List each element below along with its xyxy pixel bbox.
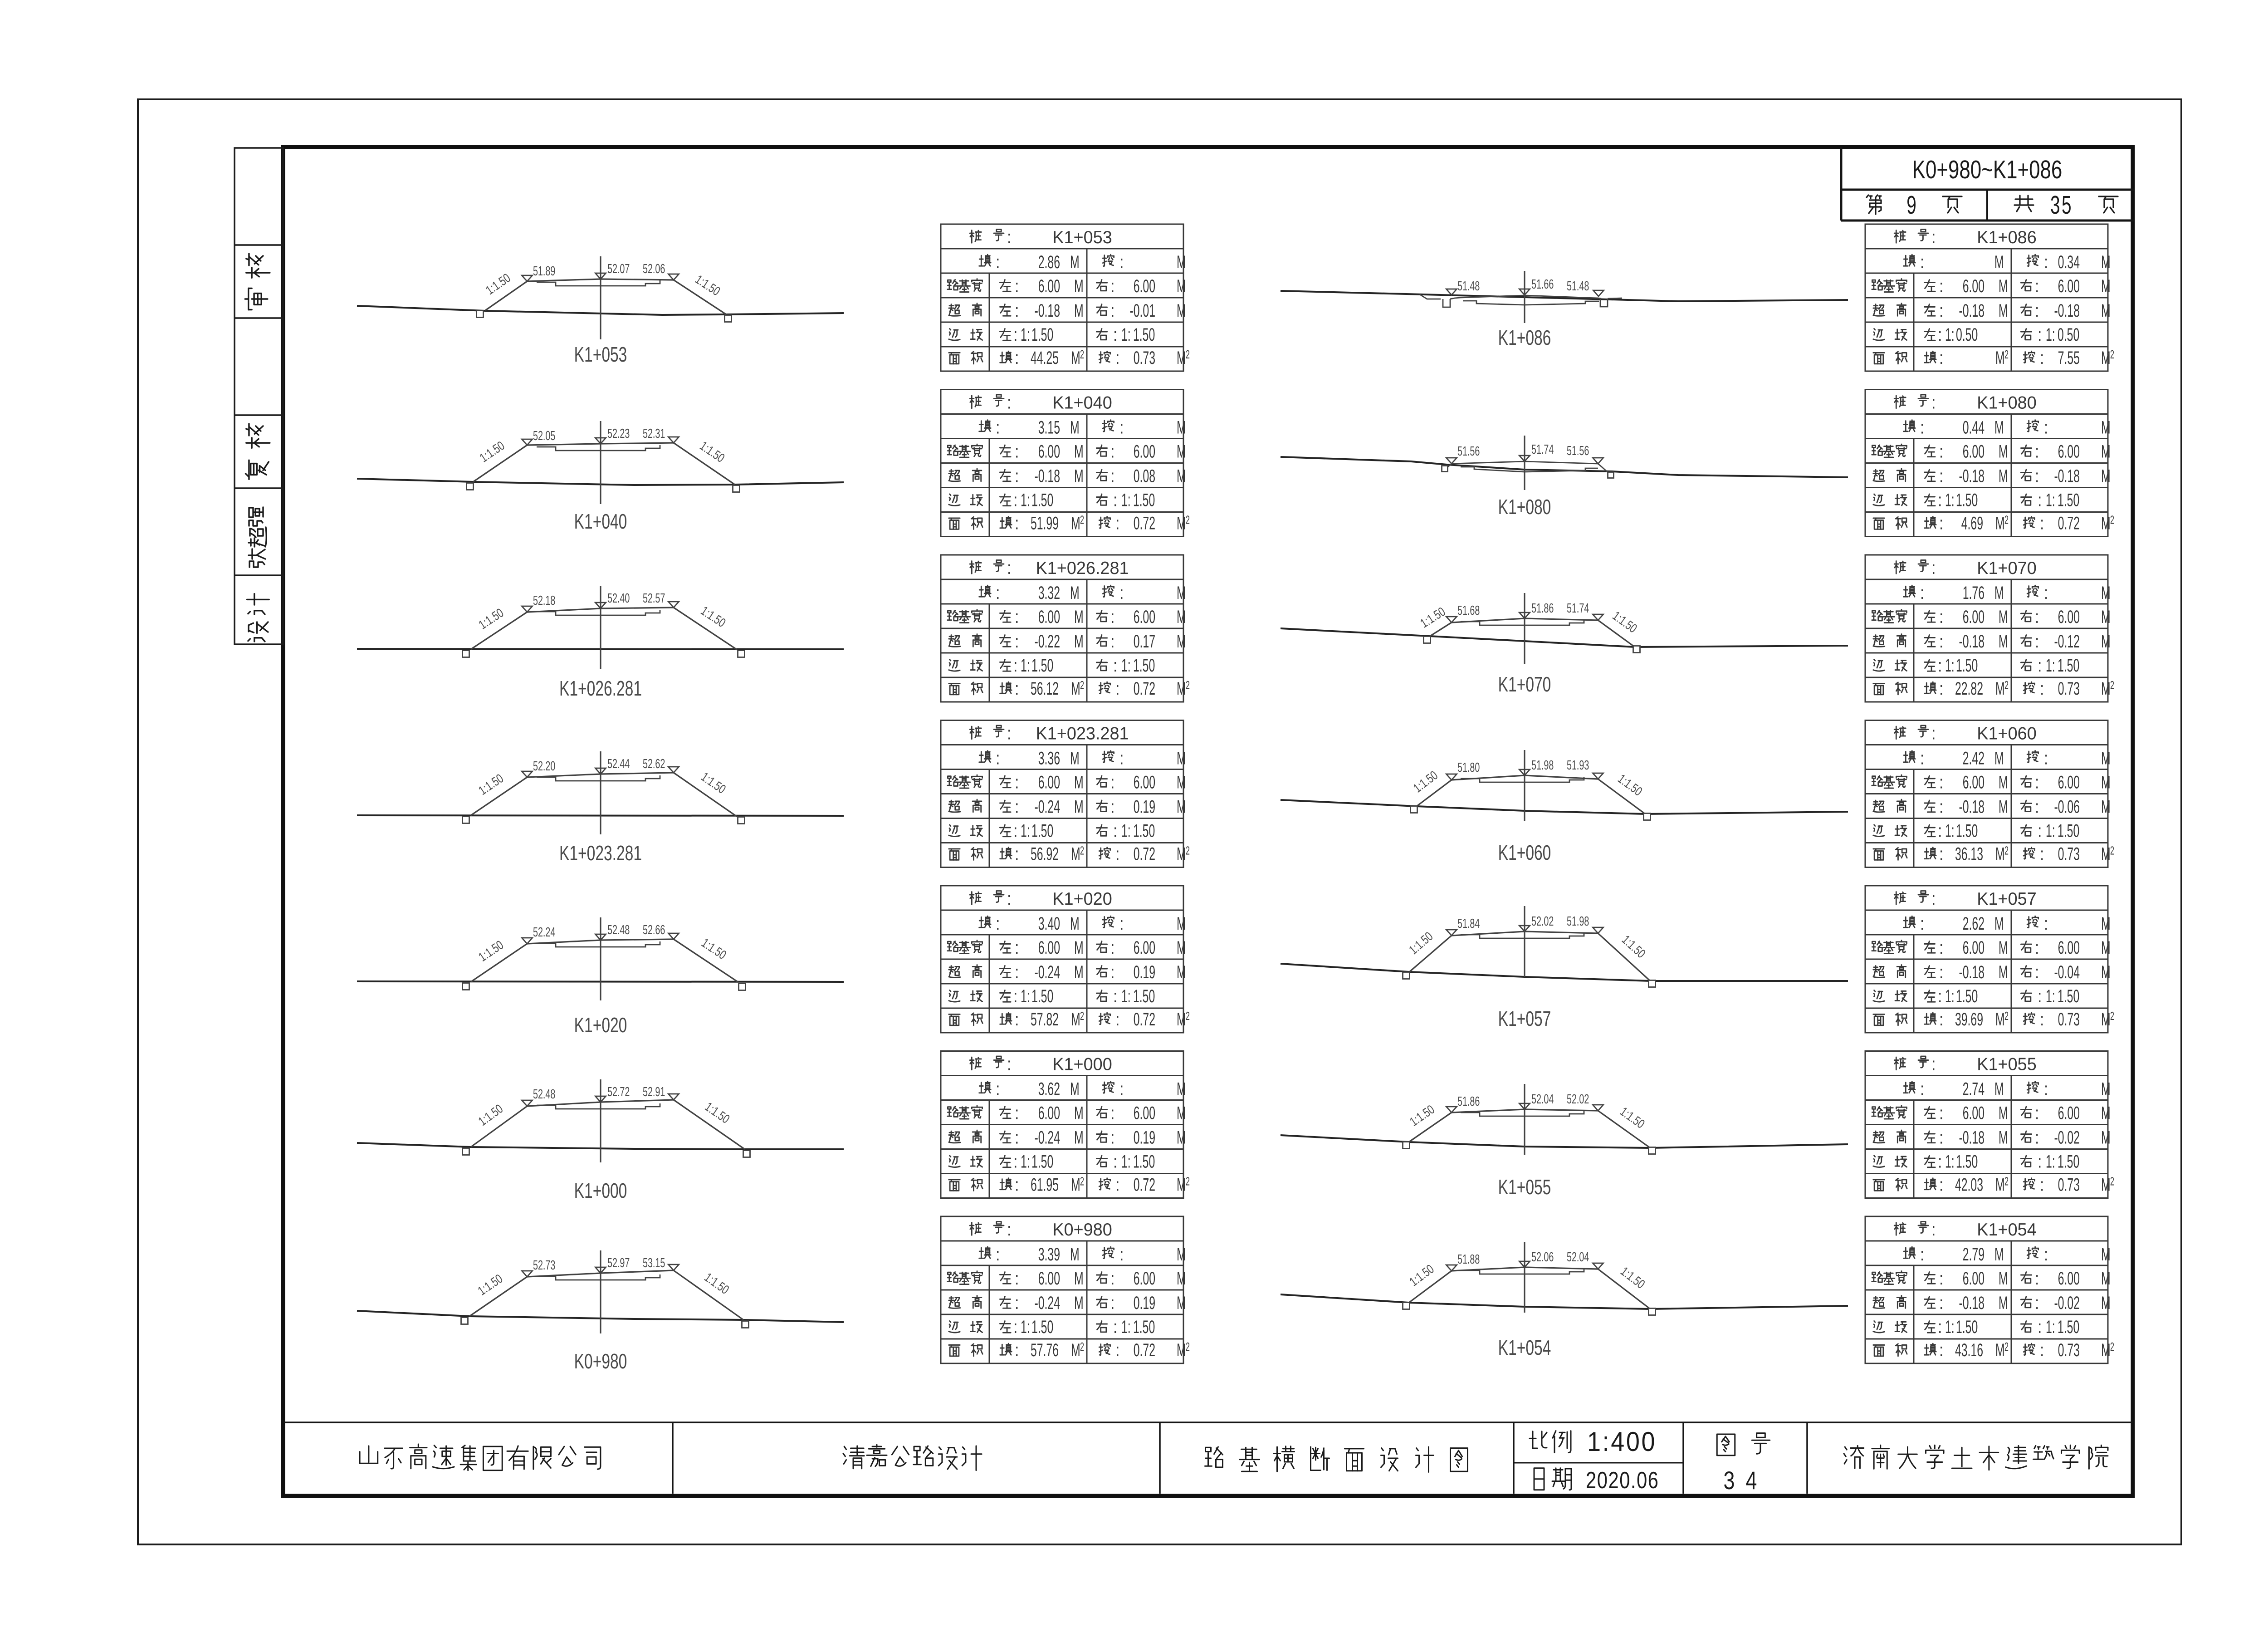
svg-text:2: 2 — [2004, 678, 2009, 692]
svg-text::: : — [2035, 937, 2039, 957]
svg-text:3: 3 — [1724, 1466, 1735, 1495]
svg-text:1.50: 1.50 — [1031, 986, 1053, 1006]
svg-text:M: M — [1995, 1175, 2005, 1195]
svg-text:0.73: 0.73 — [1134, 348, 1155, 368]
svg-text:-0.24: -0.24 — [1034, 1128, 1060, 1148]
svg-text::: : — [1013, 1151, 1017, 1171]
svg-text::: : — [1939, 1174, 1943, 1195]
svg-text:M: M — [2101, 276, 2111, 296]
svg-text:K1+060: K1+060 — [1977, 724, 2036, 744]
svg-text:2: 2 — [1186, 348, 1190, 361]
svg-text::: : — [2035, 1127, 2039, 1147]
svg-text:M: M — [1070, 1245, 1080, 1265]
svg-text:0.34: 0.34 — [2058, 252, 2080, 272]
svg-text::: : — [2040, 1009, 2044, 1029]
svg-text::: : — [1939, 796, 1943, 817]
svg-text:K1+086: K1+086 — [1498, 326, 1551, 349]
svg-text:-0.12: -0.12 — [2054, 632, 2080, 652]
svg-text:6.00: 6.00 — [1963, 607, 1984, 627]
svg-text:2: 2 — [1186, 1009, 1190, 1023]
svg-text:1.50: 1.50 — [1956, 1317, 1978, 1337]
svg-text:1.50: 1.50 — [1031, 821, 1053, 841]
svg-text::: : — [1920, 1244, 1924, 1264]
svg-text:44.25: 44.25 — [1031, 348, 1059, 368]
svg-text:M: M — [2101, 1245, 2111, 1265]
svg-text::: : — [1119, 251, 1124, 272]
svg-text:1.50: 1.50 — [2058, 656, 2079, 676]
svg-text::: : — [1110, 1127, 1114, 1147]
svg-text:3.15: 3.15 — [1038, 418, 1060, 438]
svg-text:0.72: 0.72 — [1134, 1175, 1155, 1195]
svg-text:0.44: 0.44 — [1963, 418, 1984, 438]
svg-text:K1+070: K1+070 — [1498, 673, 1551, 696]
svg-text::: : — [2040, 347, 2044, 368]
svg-text:1.50: 1.50 — [1031, 1152, 1053, 1172]
svg-text::: : — [1939, 441, 1943, 461]
svg-text::: : — [1013, 490, 1017, 510]
svg-text::: : — [1007, 1054, 1011, 1074]
svg-text:1.50: 1.50 — [1031, 490, 1053, 510]
svg-text:1:: 1: — [1021, 821, 1030, 841]
svg-text:M: M — [1177, 276, 1186, 296]
svg-text:M: M — [2101, 252, 2111, 272]
svg-text:M: M — [1071, 348, 1080, 368]
svg-text:22.82: 22.82 — [1955, 679, 1983, 699]
svg-text:M: M — [1074, 607, 1084, 627]
svg-text:-0.02: -0.02 — [2054, 1293, 2080, 1313]
svg-text:43.16: 43.16 — [1955, 1340, 1983, 1360]
svg-text:M: M — [1999, 632, 2008, 652]
svg-text::: : — [1920, 251, 1924, 272]
svg-text::: : — [1013, 324, 1017, 344]
svg-text:-0.18: -0.18 — [1034, 466, 1060, 486]
svg-text:1.50: 1.50 — [1133, 490, 1155, 510]
svg-text:0.19: 0.19 — [1134, 962, 1155, 982]
svg-text:K1+040: K1+040 — [574, 510, 627, 533]
svg-text:51.86: 51.86 — [1531, 601, 1554, 616]
svg-text::: : — [996, 251, 1000, 272]
svg-text::: : — [2035, 1268, 2039, 1288]
svg-text:M: M — [2101, 962, 2111, 982]
svg-text:2020.06: 2020.06 — [1586, 1467, 1659, 1494]
svg-text:M: M — [1070, 749, 1080, 769]
svg-text:6.00: 6.00 — [2058, 442, 2080, 462]
svg-text::: : — [1007, 557, 1011, 578]
svg-text:1:: 1: — [1121, 325, 1131, 345]
svg-text:51.99: 51.99 — [1031, 514, 1059, 534]
svg-text::: : — [1939, 275, 1943, 296]
svg-text::: : — [2044, 748, 2048, 768]
svg-text::: : — [2035, 606, 2039, 627]
svg-text::: : — [1939, 606, 1943, 627]
svg-text::: : — [1113, 1151, 1117, 1171]
svg-text::: : — [1013, 1316, 1017, 1337]
svg-text:M: M — [2101, 914, 2111, 934]
svg-text:1:: 1: — [1121, 1152, 1131, 1172]
svg-text:-0.18: -0.18 — [1959, 1128, 1984, 1148]
svg-text:M: M — [1177, 442, 1186, 462]
svg-text::: : — [2040, 513, 2044, 533]
svg-text::: : — [1119, 417, 1124, 437]
svg-text:6.00: 6.00 — [1038, 276, 1060, 296]
svg-text:M: M — [1177, 938, 1186, 958]
svg-text:52.02: 52.02 — [1567, 1092, 1589, 1107]
svg-text::: : — [1119, 1244, 1124, 1264]
svg-text::: : — [2035, 300, 2039, 320]
svg-text:51.56: 51.56 — [1567, 444, 1589, 458]
svg-text:M: M — [2101, 1010, 2111, 1029]
svg-text:51.66: 51.66 — [1531, 277, 1554, 292]
svg-text:M: M — [2101, 348, 2111, 368]
svg-text:M: M — [1177, 773, 1186, 793]
svg-text:M: M — [1999, 1293, 2008, 1313]
svg-text:M: M — [1177, 514, 1186, 534]
svg-text:M: M — [1999, 773, 2008, 793]
svg-text::: : — [1939, 843, 1943, 864]
svg-text:-0.02: -0.02 — [2054, 1128, 2080, 1148]
svg-text:M: M — [1071, 1340, 1080, 1360]
svg-text:1:: 1: — [1121, 656, 1131, 676]
svg-text:51.80: 51.80 — [1457, 760, 1480, 775]
svg-text:6.00: 6.00 — [1963, 1269, 1984, 1289]
svg-text::: : — [1115, 678, 1119, 698]
svg-text:1:: 1: — [2046, 986, 2055, 1006]
svg-text:1.50: 1.50 — [1031, 1317, 1053, 1337]
svg-text:1:: 1: — [1945, 1317, 1955, 1337]
svg-text:0.50: 0.50 — [1956, 325, 1978, 345]
svg-text::: : — [2040, 1339, 2044, 1360]
svg-text:M: M — [1074, 632, 1084, 652]
svg-text:1.50: 1.50 — [1031, 325, 1053, 345]
svg-text:2: 2 — [2110, 678, 2114, 692]
svg-text::: : — [1939, 631, 1943, 651]
svg-text:M: M — [2101, 1269, 2111, 1289]
svg-text:M: M — [1177, 301, 1186, 321]
svg-text::: : — [1015, 631, 1019, 651]
svg-text:6.00: 6.00 — [1134, 607, 1155, 627]
svg-text:M: M — [1999, 442, 2008, 462]
svg-text:K1+023.281: K1+023.281 — [559, 842, 642, 865]
svg-text::: : — [1939, 1292, 1943, 1313]
svg-text:-0.18: -0.18 — [1959, 466, 1984, 486]
svg-text:K1+070: K1+070 — [1977, 558, 2036, 578]
svg-text::: : — [2044, 1078, 2048, 1099]
svg-text::: : — [1015, 1009, 1019, 1029]
svg-text:0.73: 0.73 — [2058, 1010, 2080, 1029]
svg-text::: : — [1113, 490, 1117, 510]
svg-text::: : — [1115, 1009, 1119, 1029]
svg-text::: : — [1938, 985, 1942, 1006]
svg-text::: : — [1110, 441, 1114, 461]
svg-text:0.08: 0.08 — [1134, 466, 1155, 486]
svg-text::: : — [2038, 985, 2042, 1006]
svg-text::: : — [1931, 888, 1936, 908]
svg-text::: : — [1119, 913, 1124, 933]
svg-text:-0.18: -0.18 — [2054, 301, 2080, 321]
svg-text:2: 2 — [2004, 843, 2009, 857]
svg-text:52.23: 52.23 — [607, 426, 630, 441]
svg-text:2: 2 — [2110, 843, 2114, 857]
svg-text::: : — [1110, 631, 1114, 651]
svg-text::: : — [1015, 513, 1019, 533]
svg-text:1.50: 1.50 — [1133, 986, 1155, 1006]
svg-text:52.24: 52.24 — [533, 925, 555, 940]
svg-text:K0+980~K1+086: K0+980~K1+086 — [1912, 155, 2063, 184]
svg-text:M: M — [2101, 1079, 2111, 1099]
svg-text:M: M — [1177, 348, 1186, 368]
svg-text:M: M — [1071, 679, 1080, 699]
svg-text:3.32: 3.32 — [1038, 583, 1060, 603]
svg-text:M: M — [1177, 1010, 1186, 1029]
svg-text::: : — [2035, 1103, 2039, 1123]
svg-text:0.72: 0.72 — [1134, 679, 1155, 699]
svg-text::: : — [1007, 1219, 1011, 1239]
svg-text:M: M — [1071, 1010, 1080, 1029]
svg-text:56.12: 56.12 — [1031, 679, 1059, 699]
svg-text:M: M — [2101, 679, 2111, 699]
svg-text:57.76: 57.76 — [1031, 1340, 1059, 1360]
svg-text::: : — [2044, 582, 2048, 603]
svg-text::: : — [1015, 843, 1019, 864]
svg-text:0.72: 0.72 — [1134, 514, 1155, 534]
svg-text:M: M — [1177, 1269, 1186, 1289]
svg-text::: : — [2035, 631, 2039, 651]
svg-text:2.79: 2.79 — [1963, 1245, 1984, 1265]
svg-text:M: M — [1074, 301, 1084, 321]
svg-text::: : — [996, 582, 1000, 603]
svg-text::: : — [1938, 490, 1942, 510]
svg-text:M: M — [1177, 583, 1186, 603]
svg-text::: : — [1115, 1174, 1119, 1195]
svg-text:42.03: 42.03 — [1955, 1175, 1983, 1195]
svg-text:K1+000: K1+000 — [574, 1179, 627, 1202]
svg-text:M: M — [1177, 679, 1186, 699]
svg-text:M: M — [1177, 1128, 1186, 1148]
svg-text:1.50: 1.50 — [1956, 656, 1978, 676]
svg-text::: : — [2044, 251, 2048, 272]
svg-text:52.05: 52.05 — [533, 429, 555, 443]
svg-text:0.19: 0.19 — [1134, 1128, 1155, 1148]
svg-text:1:: 1: — [1021, 986, 1030, 1006]
svg-text:M: M — [1177, 466, 1186, 486]
svg-text:M: M — [1071, 514, 1080, 534]
svg-text:M: M — [1177, 749, 1186, 769]
svg-text:M: M — [2101, 632, 2111, 652]
svg-text:1.50: 1.50 — [2058, 1152, 2079, 1172]
svg-text:0.73: 0.73 — [2058, 679, 2080, 699]
svg-text:M: M — [1995, 844, 2005, 864]
svg-text:M: M — [2101, 797, 2111, 817]
svg-text:1:: 1: — [2046, 821, 2055, 841]
svg-text:1:: 1: — [1121, 986, 1131, 1006]
svg-text::: : — [2035, 796, 2039, 817]
svg-text::: : — [1015, 300, 1019, 320]
svg-text:52.04: 52.04 — [1531, 1092, 1554, 1107]
svg-text:-0.24: -0.24 — [1034, 797, 1060, 817]
svg-text:M: M — [1070, 252, 1080, 272]
svg-text:52.04: 52.04 — [1567, 1250, 1589, 1265]
svg-text:K1+057: K1+057 — [1977, 889, 2036, 909]
svg-text:2: 2 — [1080, 513, 1084, 526]
svg-text:M: M — [1074, 938, 1084, 958]
svg-text::: : — [1113, 324, 1117, 344]
svg-text::: : — [2044, 417, 2048, 437]
svg-text:M: M — [1074, 466, 1084, 486]
svg-text:2: 2 — [2004, 1009, 2009, 1023]
svg-text:K1+054: K1+054 — [1498, 1336, 1551, 1359]
svg-text:52.97: 52.97 — [607, 1256, 630, 1270]
svg-text::: : — [2038, 490, 2042, 510]
svg-text:51.56: 51.56 — [1457, 444, 1480, 459]
svg-text:-0.18: -0.18 — [1034, 301, 1060, 321]
svg-text:1.50: 1.50 — [1956, 986, 1978, 1006]
svg-text:35: 35 — [2050, 191, 2073, 220]
svg-text:51.48: 51.48 — [1567, 279, 1589, 294]
svg-text:6.00: 6.00 — [1038, 1103, 1060, 1123]
svg-text::: : — [1115, 513, 1119, 533]
svg-text:2: 2 — [1186, 1174, 1190, 1188]
svg-text:0.72: 0.72 — [2058, 514, 2080, 534]
svg-text:1.50: 1.50 — [1133, 821, 1155, 841]
svg-text:2: 2 — [1080, 1009, 1084, 1023]
svg-text:M: M — [1995, 1340, 2005, 1360]
svg-text:-0.04: -0.04 — [2054, 962, 2080, 982]
svg-text::: : — [1007, 226, 1011, 247]
svg-text:1.50: 1.50 — [2058, 490, 2079, 510]
svg-text:M: M — [1994, 583, 2004, 603]
svg-text:-0.22: -0.22 — [1034, 632, 1060, 652]
svg-text:M: M — [1074, 1293, 1084, 1313]
svg-text:51.88: 51.88 — [1457, 1252, 1480, 1267]
svg-text::: : — [1007, 392, 1011, 412]
svg-text::: : — [1938, 1151, 1942, 1171]
svg-text::: : — [1113, 820, 1117, 841]
svg-text::: : — [1939, 678, 1943, 698]
svg-text::: : — [1013, 820, 1017, 841]
svg-text:M: M — [1074, 1128, 1084, 1148]
svg-text:M: M — [1177, 797, 1186, 817]
svg-text:2: 2 — [2004, 348, 2009, 361]
svg-text::: : — [2040, 678, 2044, 698]
svg-text:M: M — [1999, 797, 2008, 817]
svg-text::: : — [1015, 347, 1019, 368]
svg-text:M: M — [1074, 1269, 1084, 1289]
svg-text::: : — [1939, 1127, 1943, 1147]
svg-text:1:: 1: — [1945, 656, 1955, 676]
svg-text:6.00: 6.00 — [2058, 1269, 2080, 1289]
svg-text:51.68: 51.68 — [1457, 603, 1480, 618]
svg-text::: : — [1939, 961, 1943, 982]
svg-text::: : — [1110, 1268, 1114, 1288]
svg-text:52.72: 52.72 — [607, 1085, 630, 1099]
svg-text:M: M — [1074, 1103, 1084, 1123]
svg-text:1.50: 1.50 — [1133, 1317, 1155, 1337]
svg-text::: : — [1113, 1316, 1117, 1337]
svg-text:M: M — [2101, 749, 2111, 769]
svg-text:M: M — [2101, 1293, 2111, 1313]
svg-text:51.86: 51.86 — [1457, 1094, 1480, 1109]
svg-text::: : — [1931, 392, 1936, 412]
svg-text:2: 2 — [1186, 678, 1190, 692]
svg-text:1:: 1: — [1945, 490, 1955, 510]
svg-text:M: M — [2101, 1175, 2111, 1195]
svg-text:6.00: 6.00 — [2058, 276, 2080, 296]
svg-text:K1+086: K1+086 — [1977, 227, 2036, 247]
svg-text:M: M — [1994, 252, 2004, 272]
svg-text:M: M — [1074, 962, 1084, 982]
svg-text:M: M — [1177, 1079, 1186, 1099]
svg-text:M: M — [2101, 1128, 2111, 1148]
svg-text:0.17: 0.17 — [1134, 632, 1155, 652]
svg-text::: : — [996, 1078, 1000, 1099]
svg-text:4.69: 4.69 — [1961, 514, 1983, 534]
svg-text:52.02: 52.02 — [1531, 914, 1554, 929]
svg-text:52.44: 52.44 — [607, 757, 630, 771]
svg-text:2.42: 2.42 — [1963, 749, 1984, 769]
svg-text:M: M — [2101, 514, 2111, 534]
svg-text::: : — [2038, 1151, 2042, 1171]
svg-text:1:: 1: — [1021, 656, 1030, 676]
svg-text:0.73: 0.73 — [2058, 844, 2080, 864]
svg-text:52.48: 52.48 — [607, 923, 630, 937]
svg-text::: : — [1015, 1292, 1019, 1313]
svg-text:M: M — [1177, 632, 1186, 652]
svg-text:M: M — [2101, 607, 2111, 627]
svg-text:6.00: 6.00 — [1134, 442, 1155, 462]
svg-text::: : — [1920, 913, 1924, 933]
svg-text::: : — [1110, 275, 1114, 296]
svg-text:53.15: 53.15 — [643, 1256, 665, 1270]
svg-text:M: M — [1177, 1340, 1186, 1360]
svg-text:52.57: 52.57 — [643, 591, 665, 606]
svg-text:1:: 1: — [1121, 1317, 1131, 1337]
svg-text::: : — [1119, 1078, 1124, 1099]
svg-text:0.19: 0.19 — [1134, 1293, 1155, 1313]
svg-text:1.50: 1.50 — [1956, 490, 1978, 510]
svg-text:M: M — [1177, 1103, 1186, 1123]
svg-text:51.74: 51.74 — [1567, 601, 1589, 616]
svg-text:1.50: 1.50 — [1133, 1152, 1155, 1172]
svg-text:2: 2 — [1186, 513, 1190, 526]
svg-text::: : — [1931, 557, 1936, 578]
svg-text:6.00: 6.00 — [1963, 276, 1984, 296]
svg-text:1.50: 1.50 — [1133, 656, 1155, 676]
svg-text::: : — [1015, 441, 1019, 461]
svg-text::: : — [1920, 582, 1924, 603]
svg-text:M: M — [1994, 1245, 2004, 1265]
svg-text:1:: 1: — [1021, 1317, 1030, 1337]
svg-text:K1+053: K1+053 — [1052, 227, 1112, 247]
svg-text:K1+020: K1+020 — [1052, 889, 1112, 909]
svg-text:6.00: 6.00 — [2058, 773, 2080, 793]
svg-text:1:: 1: — [1945, 325, 1955, 345]
svg-text::: : — [1920, 1078, 1924, 1099]
svg-text:51.93: 51.93 — [1567, 758, 1589, 773]
svg-text:52.31: 52.31 — [643, 426, 665, 441]
svg-text:51.74: 51.74 — [1531, 442, 1554, 457]
svg-text:2: 2 — [2110, 1009, 2114, 1023]
svg-text:K1+055: K1+055 — [1498, 1176, 1551, 1199]
svg-text::: : — [1015, 466, 1019, 486]
svg-text:K1+057: K1+057 — [1498, 1007, 1551, 1030]
svg-text:1.50: 1.50 — [1956, 821, 1978, 841]
svg-text:M: M — [2101, 1340, 2111, 1360]
svg-text::: : — [1115, 347, 1119, 368]
svg-text::: : — [1939, 1009, 1943, 1029]
svg-text:K1+060: K1+060 — [1498, 841, 1551, 864]
svg-text:2.62: 2.62 — [1963, 914, 1984, 934]
svg-text:6.00: 6.00 — [1134, 938, 1155, 958]
